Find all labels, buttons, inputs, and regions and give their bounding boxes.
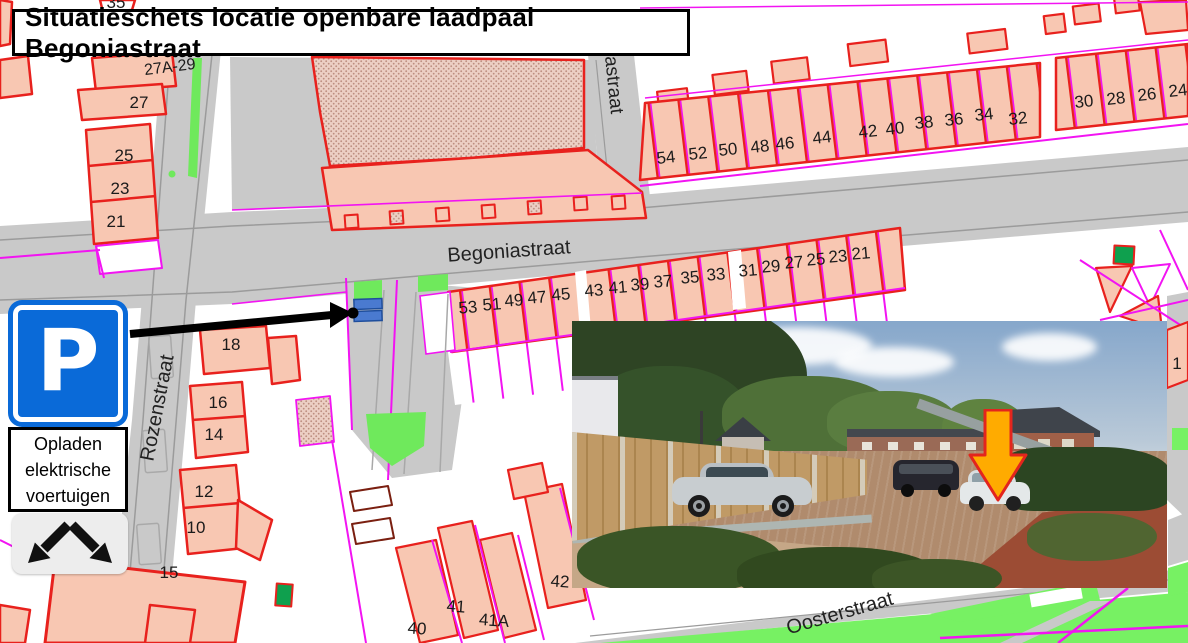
page-title: Situatieschets locatie openbare laadpaal… — [25, 2, 687, 64]
situatieschets-page: { "title": "Situatieschets locatie openb… — [0, 0, 1188, 643]
caption-line: Opladen — [34, 431, 102, 457]
location-highlight-arrow — [968, 409, 1028, 503]
silver-sedan — [672, 463, 812, 513]
cloud — [1002, 333, 1097, 361]
diagonal-arrows-icon — [12, 513, 128, 574]
parking-p-icon: P — [36, 318, 99, 404]
house-windows — [862, 442, 872, 450]
streetview-photo — [572, 321, 1167, 588]
charging-caption-box: Opladen elektrische voertuigen — [8, 427, 128, 512]
parking-sign-border: P — [13, 305, 123, 422]
caption-line: voertuigen — [26, 483, 110, 509]
caption-line: elektrische — [25, 457, 111, 483]
parking-sign: P — [8, 300, 128, 427]
title-box: Situatieschets locatie openbare laadpaal… — [12, 9, 690, 56]
dark-minivan — [893, 460, 959, 494]
direction-arrows-box — [12, 513, 128, 574]
cloud — [834, 347, 954, 377]
